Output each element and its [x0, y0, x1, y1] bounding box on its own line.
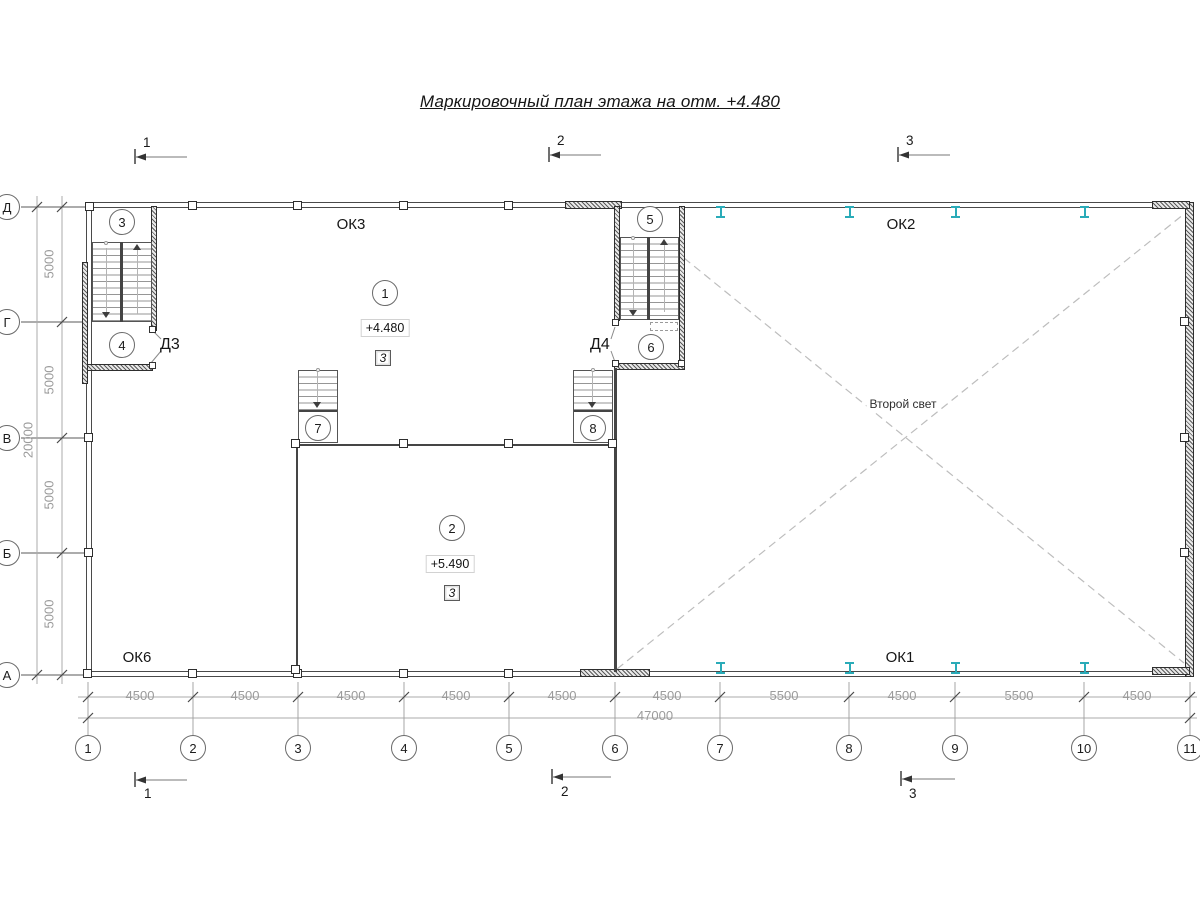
stair-7-down-arrow-icon: [313, 402, 321, 408]
axis-letter: А: [3, 668, 12, 683]
jamb-marker: [678, 360, 685, 367]
axis-number: 3: [294, 741, 301, 756]
stair-d4-divider: [647, 237, 650, 320]
section-mark-top-3: 3: [906, 133, 914, 148]
position-number: 5: [646, 212, 653, 227]
axis-letter: В: [3, 431, 12, 446]
jamb-marker: [612, 360, 619, 367]
floor-type-number: 3: [380, 351, 387, 365]
axis-circle-col-4: 4: [391, 735, 417, 761]
dim-label: 5000: [42, 250, 57, 279]
dim-label: 4500: [337, 688, 366, 703]
dim-label: 4500: [1123, 688, 1152, 703]
axis-number: 2: [189, 741, 196, 756]
dim-total-label: 47000: [637, 708, 673, 723]
stair-d4-down-arrow-icon: [629, 310, 637, 316]
stair-d3-up-arrow-icon: [133, 244, 141, 250]
second-light-cross: [617, 214, 1184, 669]
jamb-marker: [149, 362, 156, 369]
axis-circle-col-11: 11: [1177, 735, 1200, 761]
axis-number: 9: [951, 741, 958, 756]
dim-label: 4500: [231, 688, 260, 703]
steel-column-icon: [951, 206, 960, 218]
door-label-d4: Д4: [590, 336, 610, 354]
floor-type-number: 3: [449, 586, 456, 600]
section-mark-bottom-3: 3: [909, 786, 917, 801]
position-circle-2: 2: [439, 515, 465, 541]
plan-title: Маркировочный план этажа на отм. +4.480: [0, 92, 1200, 112]
floor-plan-drawing: Маркировочный план этажа на отм. +4.480: [0, 0, 1200, 900]
column-marker: [399, 669, 408, 678]
room2-east-wall: [614, 368, 617, 672]
axis-letter: Д: [3, 200, 12, 215]
position-number: 6: [647, 340, 654, 355]
column-marker: [399, 201, 408, 210]
dim-label: 4500: [126, 688, 155, 703]
jamb-marker: [612, 319, 619, 326]
walkline-start-dot: [316, 368, 320, 372]
column-marker: [85, 202, 94, 211]
position-circle-5: 5: [637, 206, 663, 232]
wall-top: [88, 202, 1190, 208]
position-circle-8: 8: [580, 415, 606, 441]
stair-d4-opening-dashed: [650, 322, 678, 331]
stair-d3-walkline-down: [106, 248, 107, 312]
axis-number: 5: [505, 741, 512, 756]
second-light-note: Второй свет: [866, 397, 939, 411]
axis-circle-col-8: 8: [836, 735, 862, 761]
axis-circle-col-5: 5: [496, 735, 522, 761]
column-marker: [83, 669, 92, 678]
dim-label: 5500: [770, 688, 799, 703]
axis-number: 8: [845, 741, 852, 756]
position-circle-3: 3: [109, 209, 135, 235]
stair-d4-east-wall: [679, 206, 685, 369]
dim-label: 5500: [1005, 688, 1034, 703]
position-number: 3: [118, 215, 125, 230]
column-marker: [608, 439, 617, 448]
walkline-start-dot: [104, 241, 108, 245]
window-label-ok1: ОК1: [886, 649, 915, 666]
position-number: 7: [314, 421, 321, 436]
room2-north-wall: [296, 444, 617, 446]
elevation-label-lower: +5.490: [426, 555, 475, 573]
column-marker: [188, 669, 197, 678]
window-label-ok6: ОК6: [123, 649, 152, 666]
axis-number: 1: [84, 741, 91, 756]
axis-number: 11: [1183, 741, 1197, 756]
wall-segment-bottom-axis11: [1152, 667, 1190, 675]
axis-circle-col-7: 7: [707, 735, 733, 761]
section-mark-bottom-2: 2: [561, 784, 569, 799]
wall-segment-top-axis11: [1152, 201, 1190, 209]
section-mark-top-2: 2: [557, 133, 565, 148]
plan-linework: [0, 0, 1200, 900]
position-circle-1: 1: [372, 280, 398, 306]
axis-number: 7: [716, 741, 723, 756]
dim-label: 4500: [653, 688, 682, 703]
dim-label: 4500: [888, 688, 917, 703]
steel-column-icon: [716, 206, 725, 218]
walkline-start-dot: [591, 368, 595, 372]
dim-label: 5000: [42, 366, 57, 395]
dim-label: 4500: [548, 688, 577, 703]
room2-west-wall: [296, 444, 298, 672]
floor-type-box-1: 3: [375, 350, 391, 366]
axis-circle-col-6: 6: [602, 735, 628, 761]
position-number: 8: [589, 421, 596, 436]
column-marker: [504, 201, 513, 210]
column-marker: [293, 201, 302, 210]
steel-column-icon: [716, 662, 725, 674]
column-marker: [1180, 317, 1189, 326]
axis-circle-col-9: 9: [942, 735, 968, 761]
axis-letter: Б: [3, 546, 12, 561]
stair-d4-south-wall: [614, 363, 685, 370]
column-marker: [1180, 548, 1189, 557]
position-number: 2: [448, 521, 455, 536]
position-circle-6: 6: [638, 334, 664, 360]
axis-number: 4: [400, 741, 407, 756]
position-circle-7: 7: [305, 415, 331, 441]
stair-d4-walkline-up: [664, 245, 665, 312]
stair-d3-south-wall: [86, 364, 153, 371]
stair-d4-up-arrow-icon: [660, 239, 668, 245]
window-label-ok2: ОК2: [887, 216, 916, 233]
axis-letter: Г: [3, 315, 10, 330]
column-marker: [291, 439, 300, 448]
steel-column-icon: [845, 662, 854, 674]
position-number: 1: [381, 286, 388, 301]
stair-8-down-arrow-icon: [588, 402, 596, 408]
position-number: 4: [118, 338, 125, 353]
stair-d3-divider: [120, 242, 123, 322]
steel-column-icon: [951, 662, 960, 674]
column-marker: [84, 548, 93, 557]
stair-8-walkline: [592, 372, 593, 402]
column-marker: [291, 665, 300, 674]
stair-d3-walkline-up: [137, 250, 138, 314]
axis-circle-col-10: 10: [1071, 735, 1097, 761]
door-label-d3: Д3: [160, 336, 180, 354]
column-marker: [504, 439, 513, 448]
axis-circle-col-2: 2: [180, 735, 206, 761]
position-circle-4: 4: [109, 332, 135, 358]
axis-number: 6: [611, 741, 618, 756]
dim-label: 5000: [42, 600, 57, 629]
column-marker: [1180, 433, 1189, 442]
steel-column-icon: [1080, 662, 1089, 674]
section-mark-top-1: 1: [143, 135, 151, 150]
steel-column-icon: [1080, 206, 1089, 218]
stair-7-walkline: [317, 372, 318, 402]
dim-label: 5000: [42, 481, 57, 510]
elevation-label-upper: +4.480: [361, 319, 410, 337]
axis-number: 10: [1077, 741, 1091, 756]
section-mark-bottom-1: 1: [144, 786, 152, 801]
floor-type-box-2: 3: [444, 585, 460, 601]
walkline-start-dot: [631, 236, 635, 240]
column-marker: [188, 201, 197, 210]
stair-d4-walkline-down: [633, 243, 634, 310]
stair-d3-down-arrow-icon: [102, 312, 110, 318]
column-marker: [504, 669, 513, 678]
axis-circle-col-1: 1: [75, 735, 101, 761]
axis-circle-col-3: 3: [285, 735, 311, 761]
window-label-ok3: ОК3: [337, 216, 366, 233]
column-marker: [399, 439, 408, 448]
jamb-marker: [149, 326, 156, 333]
column-marker: [84, 433, 93, 442]
dim-label: 4500: [442, 688, 471, 703]
steel-column-icon: [845, 206, 854, 218]
stair-d3-west-wall: [82, 262, 88, 384]
dim-total-label: 20000: [21, 422, 36, 458]
